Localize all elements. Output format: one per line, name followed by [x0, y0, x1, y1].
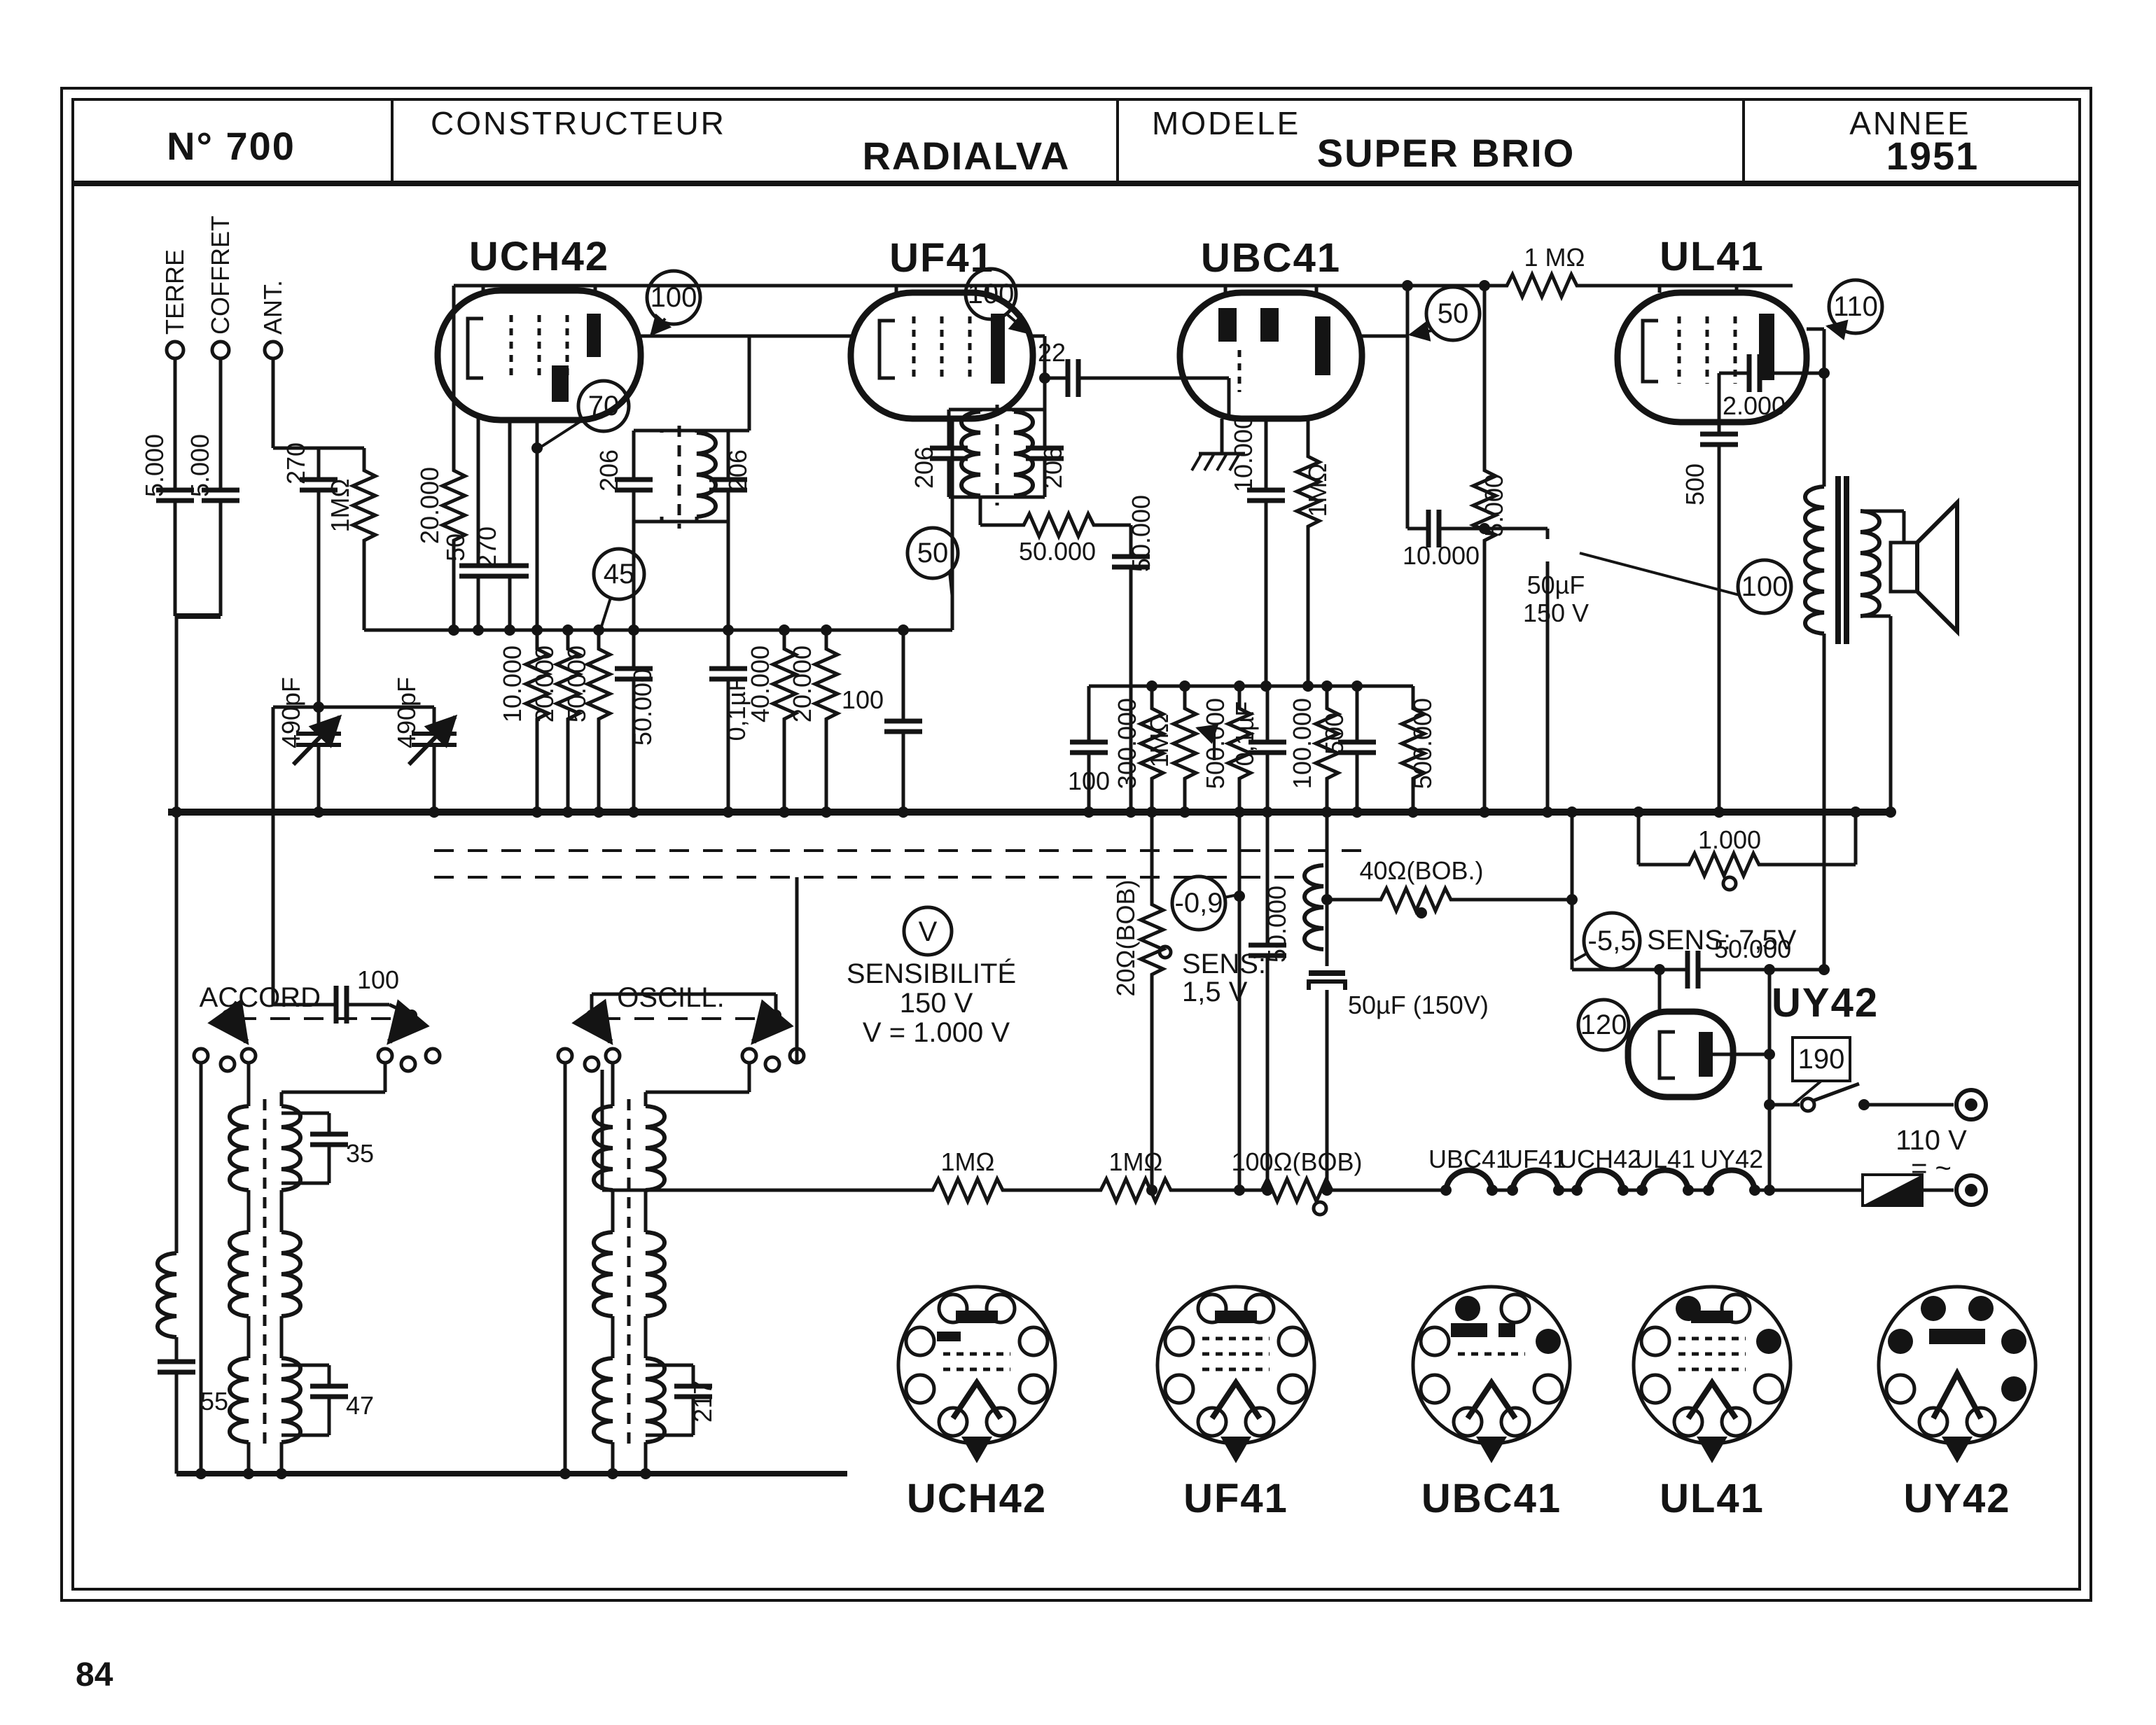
page-number: 84: [76, 1656, 113, 1693]
callout-uy-out: 120: [1580, 1010, 1627, 1040]
fil-ubc41: UBC41: [1428, 1145, 1510, 1173]
cap-100-b: 100: [1068, 767, 1110, 795]
cap-500-b: 500: [1681, 463, 1709, 505]
modele-label: MODELE: [1152, 105, 1300, 141]
constructeur-value: RADIALVA: [862, 134, 1070, 178]
cap-22: 22: [1038, 338, 1066, 367]
cap-100-accord: 100: [357, 965, 399, 994]
avc-lines: [434, 851, 1365, 877]
res-20000-b: 20.000: [530, 645, 559, 722]
cap-5000a-value: 5.000: [140, 434, 169, 497]
cap-100-a: 100: [842, 685, 884, 714]
callout-uy-in: 190: [1798, 1044, 1845, 1075]
pinout-ubc41-label: UBC41: [1421, 1476, 1562, 1521]
cap-01uf-b: 0,1µF: [1230, 701, 1259, 767]
coffret-label: COFFRET: [206, 216, 235, 335]
terre-label: TERRE: [160, 249, 189, 335]
annee-value: 1951: [1886, 134, 1980, 178]
callout-ul-cath: 100: [1741, 571, 1788, 602]
cap-2000: 2.000: [1723, 391, 1786, 420]
mains-voltage: 110 V: [1896, 1125, 1967, 1156]
ground-bus: 1.000: [168, 806, 1896, 890]
res-100bob: 100Ω(BOB): [1232, 1147, 1363, 1176]
fil-ul41: UL41: [1635, 1145, 1695, 1173]
res-1m-leak: 1MΩ: [326, 479, 354, 533]
header: N° 700 CONSTRUCTEUR RADIALVA MODELE SUPE…: [73, 99, 2080, 183]
varcap-2: 490pF: [392, 677, 421, 748]
uch42-label: UCH42: [469, 234, 609, 279]
res-1m-e: 1MΩ: [941, 1147, 995, 1176]
ul41-stage: UL41 5.000 10.000 50µF 150 V 100 110: [1403, 234, 2156, 1106]
cap-50: 50: [441, 533, 470, 561]
ecap-50uf-150v: 50µF (150V): [1348, 991, 1489, 1019]
res-40bob: 40Ω(BOB.): [1360, 856, 1484, 885]
accord-label: ACCORD: [200, 982, 321, 1013]
sensitivity-note: V SENSIBILITÉ 150 V V = 1.000 V: [847, 907, 1016, 1048]
if1-cap1: 206: [594, 449, 623, 491]
varcap-1: 490pF: [277, 677, 305, 748]
callout-uch-screen: 70: [588, 391, 620, 421]
modele-value: SUPER BRIO: [1317, 131, 1576, 175]
callout-g-ul: -5,5: [1588, 926, 1636, 956]
tuning-section: 55 100 ACCORD: [158, 616, 847, 1479]
pinout-ubc41: UBC41: [1413, 1287, 1570, 1521]
res-1m-top: 1 MΩ: [1524, 243, 1585, 272]
res-20bob: 20Ω(BOB): [1111, 880, 1140, 997]
pinout-uch42: UCH42: [898, 1287, 1055, 1521]
ubc41-label: UBC41: [1201, 235, 1341, 281]
pinout-uf41: UF41: [1157, 1287, 1314, 1521]
page-frame: [62, 88, 2091, 1600]
callout-vmeter: V: [919, 916, 938, 947]
fil-uy42: UY42: [1700, 1145, 1763, 1173]
if1-cap2: 206: [723, 449, 752, 491]
oscill-label: OSCILL.: [617, 982, 724, 1013]
schematic-canvas: N° 700 CONSTRUCTEUR RADIALVA MODELE SUPE…: [0, 0, 2156, 1725]
cap-10000-a: 10.000: [1229, 415, 1258, 492]
cap-55: 55: [200, 1387, 228, 1416]
heater-line: 1MΩ 1MΩ 100Ω(BOB) UBC41 UF41 UCH42 UL41 …: [602, 1145, 1863, 1215]
callout-uf-plate: 100: [968, 279, 1015, 309]
note-sensibilite: SENSIBILITÉ: [847, 958, 1016, 989]
res-20000-c: 20.000: [788, 645, 816, 722]
cap-50000-b: 50.000: [1127, 495, 1155, 572]
res-50000: 50.000: [562, 645, 591, 722]
if2-cap2: 206: [1038, 447, 1067, 489]
note-v1000: V = 1.000 V: [863, 1017, 1010, 1048]
bias-network: 20Ω(BOB) -0,9 SENS: 1,5 V 50.000: [1111, 812, 1291, 1190]
pinout-ul41-label: UL41: [1660, 1476, 1765, 1521]
cap-10000-b: 10.000: [1403, 541, 1480, 570]
trimmer-217: 217: [688, 1381, 717, 1423]
callout-uf-screen: 50: [917, 538, 949, 568]
res-40000: 40.000: [746, 645, 774, 722]
pinout-ul41: UL41: [1634, 1287, 1790, 1521]
res-300000: 300.000: [1113, 698, 1141, 789]
ubc41-stage: UBC41 50 10.000 1MΩ: [1180, 235, 1480, 686]
res-1000: 1.000: [1698, 825, 1761, 854]
res-pot-1m: 1MΩ: [1145, 714, 1174, 768]
sheet-number: N° 700: [167, 124, 295, 168]
output-transformer: [1805, 476, 1957, 970]
cap-50000-c: 50.000: [1263, 886, 1291, 963]
callout-ubc-plate: 50: [1438, 298, 1469, 329]
res-20000-a: 20.000: [415, 467, 444, 544]
fil-uch42: UCH42: [1559, 1145, 1641, 1173]
cap-5000b-value: 5.000: [186, 434, 214, 497]
cap-50000-a: 50.000: [628, 669, 657, 746]
callout-g-ubc: -0,9: [1175, 888, 1223, 919]
fil-uf41: UF41: [1505, 1145, 1566, 1173]
res-500000-a: 500.000: [1201, 698, 1230, 789]
note-150v: 150 V: [900, 988, 973, 1019]
note-sens-ubc-b: 1,5 V: [1182, 977, 1248, 1007]
ul41-label: UL41: [1660, 234, 1765, 279]
pinout-uf41-label: UF41: [1183, 1476, 1288, 1521]
cap-50000-d: 50.000: [1714, 935, 1791, 963]
res-1m-b: 1MΩ: [1303, 463, 1332, 517]
speaker: [1891, 503, 1957, 631]
cap-500-a: 500: [1320, 713, 1349, 755]
pinout-uy42-label: UY42: [1903, 1476, 2010, 1521]
cap-270-ant: 270: [281, 442, 310, 484]
res-100000: 100.000: [1288, 698, 1316, 789]
uy42-label: UY42: [1772, 980, 1879, 1026]
ant-label: ANT.: [258, 280, 287, 335]
res-1m-f: 1MΩ: [1109, 1147, 1163, 1176]
res-50000-h: 50.000: [1019, 537, 1096, 566]
if2-cap1: 206: [910, 447, 938, 489]
trimmer-47: 47: [346, 1391, 374, 1420]
ecap-50uf-l1: 50µF: [1527, 571, 1585, 599]
callout-uch-osc: 45: [604, 559, 635, 589]
input-terminals: TERRE COFFRET ANT. 5.000 5.000: [140, 216, 287, 616]
constructeur-label: CONSTRUCTEUR: [431, 105, 726, 141]
ecap-50uf-l2: 150 V: [1523, 599, 1589, 627]
pinout-uy42: UY42: [1879, 1287, 2036, 1521]
callout-ul-plate: 110: [1833, 291, 1878, 322]
pinout-uch42-label: UCH42: [907, 1476, 1047, 1521]
trimmer-35: 35: [346, 1139, 374, 1168]
callout-uch-plate: 100: [651, 282, 697, 313]
cap-270: 270: [473, 526, 501, 568]
detector-network: 100 300.000 1MΩ 500.000 0,1µF 100.000 50…: [1068, 680, 1437, 812]
res-500000-b: 500.000: [1408, 698, 1437, 789]
res-10000: 10.000: [498, 645, 527, 722]
